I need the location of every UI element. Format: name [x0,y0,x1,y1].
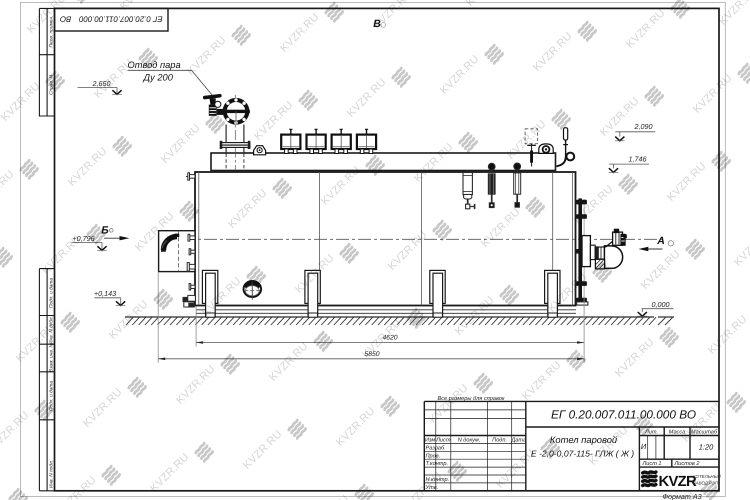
svg-text:А: А [656,235,665,247]
svg-text:Лист: Лист [435,437,451,443]
svg-text:KVZR.RU: KVZR.RU [520,359,564,403]
svg-text:Инв. N подл.: Инв. N подл. [49,460,55,488]
svg-text:KVZR.RU: KVZR.RU [732,225,750,269]
svg-text:KVZR.RU: KVZR.RU [241,428,285,472]
svg-text:KVZR.RU: KVZR.RU [531,30,575,74]
svg-text:ЕГ 0.20.007.011.00.000 ВО: ЕГ 0.20.007.011.00.000 ВО [60,15,163,24]
svg-text:KVZR.RU: KVZR.RU [159,122,203,166]
svg-text:KVZR.RU: KVZR.RU [464,0,508,9]
svg-text:KVZR.RU: KVZR.RU [0,168,17,212]
svg-text:Пров.: Пров. [426,453,441,459]
svg-text:KVZR.RU: KVZR.RU [148,451,192,495]
svg-text:KVZR.RU: KVZR.RU [334,405,378,449]
svg-text:И: И [641,442,647,451]
svg-text:Дата: Дата [510,437,526,443]
svg-text:KVZR.RU: KVZR.RU [107,298,151,342]
svg-text:KVZR.RU: KVZR.RU [371,0,415,32]
svg-text:Разраб.: Разраб. [426,444,446,451]
svg-text:1:20: 1:20 [699,443,714,452]
svg-text:Взам. инв. N: Взам. инв. N [49,344,55,372]
svg-text:KVZR.RU: KVZR.RU [639,248,683,292]
svg-text:KVZR.RU: KVZR.RU [66,145,110,189]
svg-text:2,090: 2,090 [634,122,653,131]
svg-text:Подп.: Подп. [492,436,507,443]
svg-text:KVZR.RU: KVZR.RU [345,76,389,120]
svg-text:КОТЕЛЬНЫЙ: КОТЕЛЬНЫЙ [693,474,721,479]
svg-text:Ду 200: Ду 200 [143,73,174,83]
svg-text:1,746: 1,746 [629,155,647,164]
svg-text:Подп. и дата: Подп. и дата [49,278,55,308]
svg-text:KVZR.RU: KVZR.RU [494,447,538,491]
svg-text:KVZR.RU: KVZR.RU [185,34,229,78]
svg-text:KVZR.RU: KVZR.RU [81,386,125,430]
svg-text:KVZR: KVZR [659,474,697,490]
svg-text:KVZR.RU: KVZR.RU [438,53,482,97]
svg-text:KVZR.RU: KVZR.RU [427,382,471,426]
svg-text:Листов 2: Листов 2 [673,461,700,467]
svg-text:KVZR.RU: KVZR.RU [118,0,162,13]
svg-text:KVZR.RU: KVZR.RU [624,7,668,51]
svg-text:Лист 1: Лист 1 [641,461,661,467]
svg-text:KVZR.RU: KVZR.RU [691,72,735,116]
svg-text:Перв. примен.: Перв. примен. [49,16,55,48]
svg-text:N докум.: N докум. [458,436,481,443]
svg-text:KVZR.RU: KVZR.RU [587,424,631,468]
svg-text:KVZR.RU: KVZR.RU [0,409,32,453]
svg-text:Т.контр.: Т.контр. [426,461,449,467]
svg-text:ЕГ 0.20.007.011.00.000 ВО: ЕГ 0.20.007.011.00.000 ВО [551,408,696,422]
svg-text:KVZR.RU: KVZR.RU [0,80,43,124]
svg-text:KVZR.RU: KVZR.RU [174,363,218,407]
svg-text:0,000: 0,000 [652,300,670,309]
svg-text:KVZR.RU: KVZR.RU [706,313,750,357]
svg-text:KVZR.RU: KVZR.RU [665,160,709,204]
svg-text:KVZR.RU: KVZR.RU [717,0,750,28]
svg-text:KVZR.RU: KVZR.RU [278,11,322,55]
svg-text:KVZR.RU: KVZR.RU [613,336,657,380]
svg-text:Изм: Изм [425,437,436,443]
svg-text:+0,143: +0,143 [94,289,116,298]
svg-text:KVZR.RU: KVZR.RU [40,233,84,277]
svg-text:KVZR.RU: KVZR.RU [401,470,445,500]
svg-text:KVZR.RU: KVZR.RU [267,340,311,384]
